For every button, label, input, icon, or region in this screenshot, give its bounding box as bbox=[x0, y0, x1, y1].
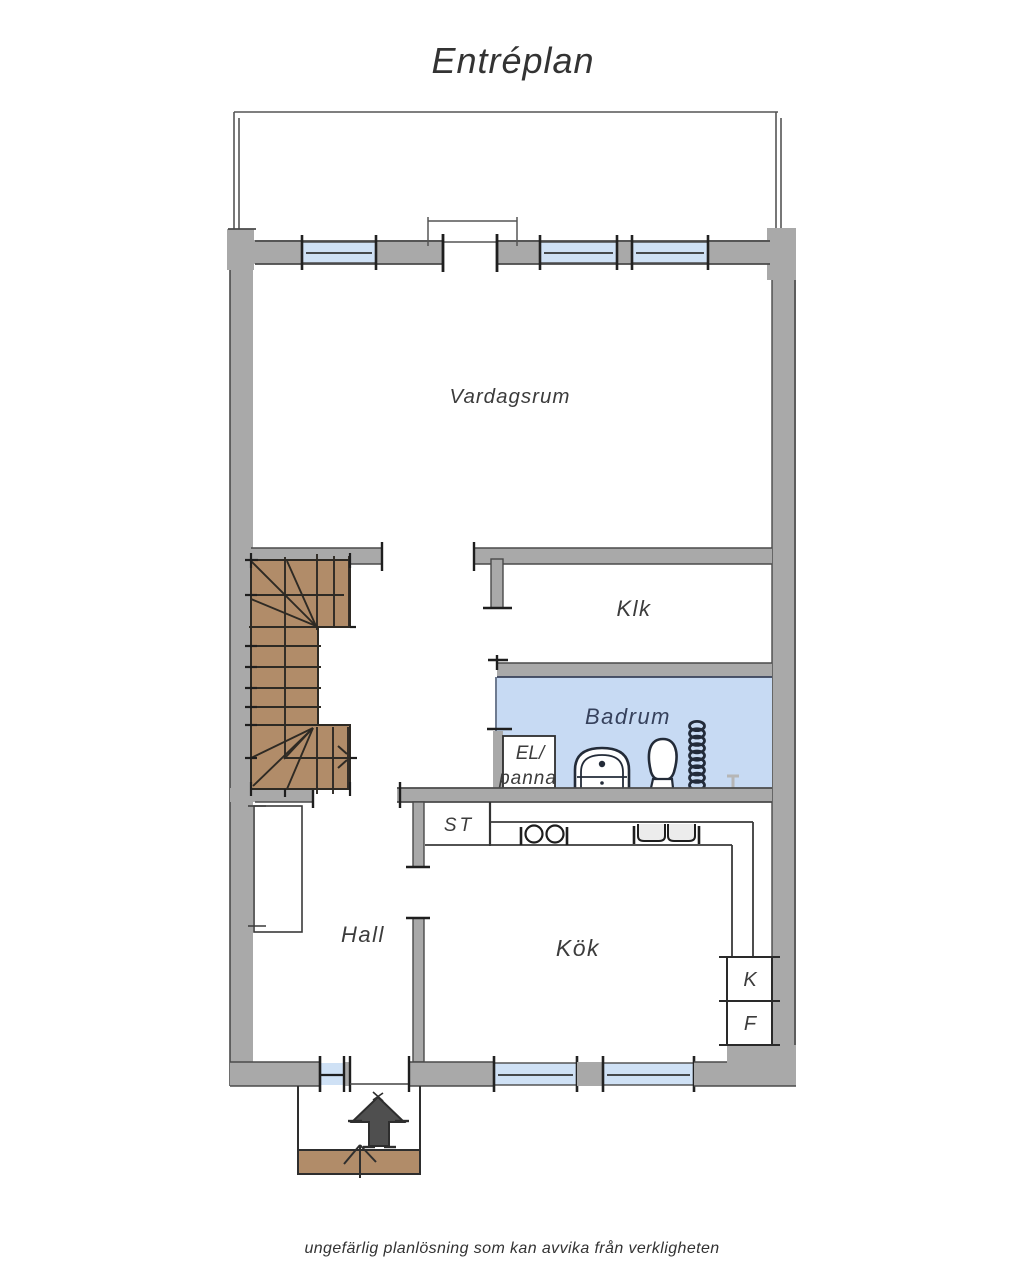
svg-text:ungefärlig planlösning som kan: ungefärlig planlösning som kan avvika fr… bbox=[304, 1239, 719, 1257]
svg-text:panna: panna bbox=[498, 768, 557, 789]
svg-text:Badrum: Badrum bbox=[585, 704, 671, 729]
svg-text:Klk: Klk bbox=[616, 596, 651, 621]
svg-text:Kök: Kök bbox=[556, 935, 600, 961]
svg-text:Vardagsrum: Vardagsrum bbox=[450, 385, 571, 408]
svg-text:EL/: EL/ bbox=[516, 743, 546, 764]
svg-text:K: K bbox=[743, 969, 758, 991]
svg-text:Entréplan: Entréplan bbox=[431, 40, 594, 81]
svg-text:ST: ST bbox=[444, 815, 474, 836]
svg-text:Hall: Hall bbox=[341, 922, 385, 947]
svg-text:F: F bbox=[744, 1013, 758, 1035]
